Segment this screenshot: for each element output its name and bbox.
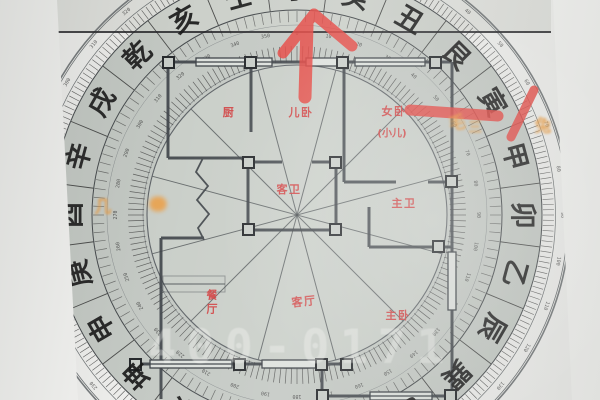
room-label-kitchen: 厨 (223, 104, 236, 120)
room-label-guest-bath: 客卫 (277, 181, 302, 197)
degree-number: 80 (472, 180, 479, 187)
watermark-orange-glyph: 毛 (447, 107, 467, 134)
room-label-kids-bedroom: 儿卧 (289, 104, 314, 120)
mountain-character: 子 (284, 0, 311, 6)
watermark-phone-number: 400-0171 (148, 320, 454, 375)
watermark-orange-glyph: 兔 (535, 112, 552, 137)
room-label-dining: 餐厅 (203, 289, 219, 317)
column (445, 390, 456, 400)
column (245, 57, 256, 68)
column (243, 157, 254, 168)
column (446, 176, 457, 187)
mountain-character: 卯 (507, 202, 538, 229)
room-label-girls-bedroom-sub: (小儿) (377, 125, 406, 140)
column (337, 57, 348, 68)
column (243, 224, 254, 235)
column (163, 57, 174, 68)
watermark-orange-glyph: 几 (95, 193, 112, 218)
column (433, 241, 444, 252)
window (448, 252, 456, 310)
red-arrow-shaft (305, 25, 307, 97)
column (317, 390, 328, 400)
watermark-orange-glyph: 三 (468, 117, 482, 137)
degree-number: 80 (554, 165, 561, 172)
degree-number: 270 (113, 210, 119, 219)
room-label-living: 客厅 (291, 292, 318, 311)
luopan-floorplan-photo: 0010102020303040405050606070708080909010… (0, 0, 600, 400)
degree-number: 180 (292, 393, 301, 399)
degree-number: 90 (475, 212, 481, 218)
watermark-orange-blob (150, 197, 167, 212)
column (330, 157, 341, 168)
column (330, 224, 341, 235)
room-label-girls-bedroom: 女卧 (382, 103, 407, 119)
room-label-master-bath: 主卫 (392, 195, 417, 211)
